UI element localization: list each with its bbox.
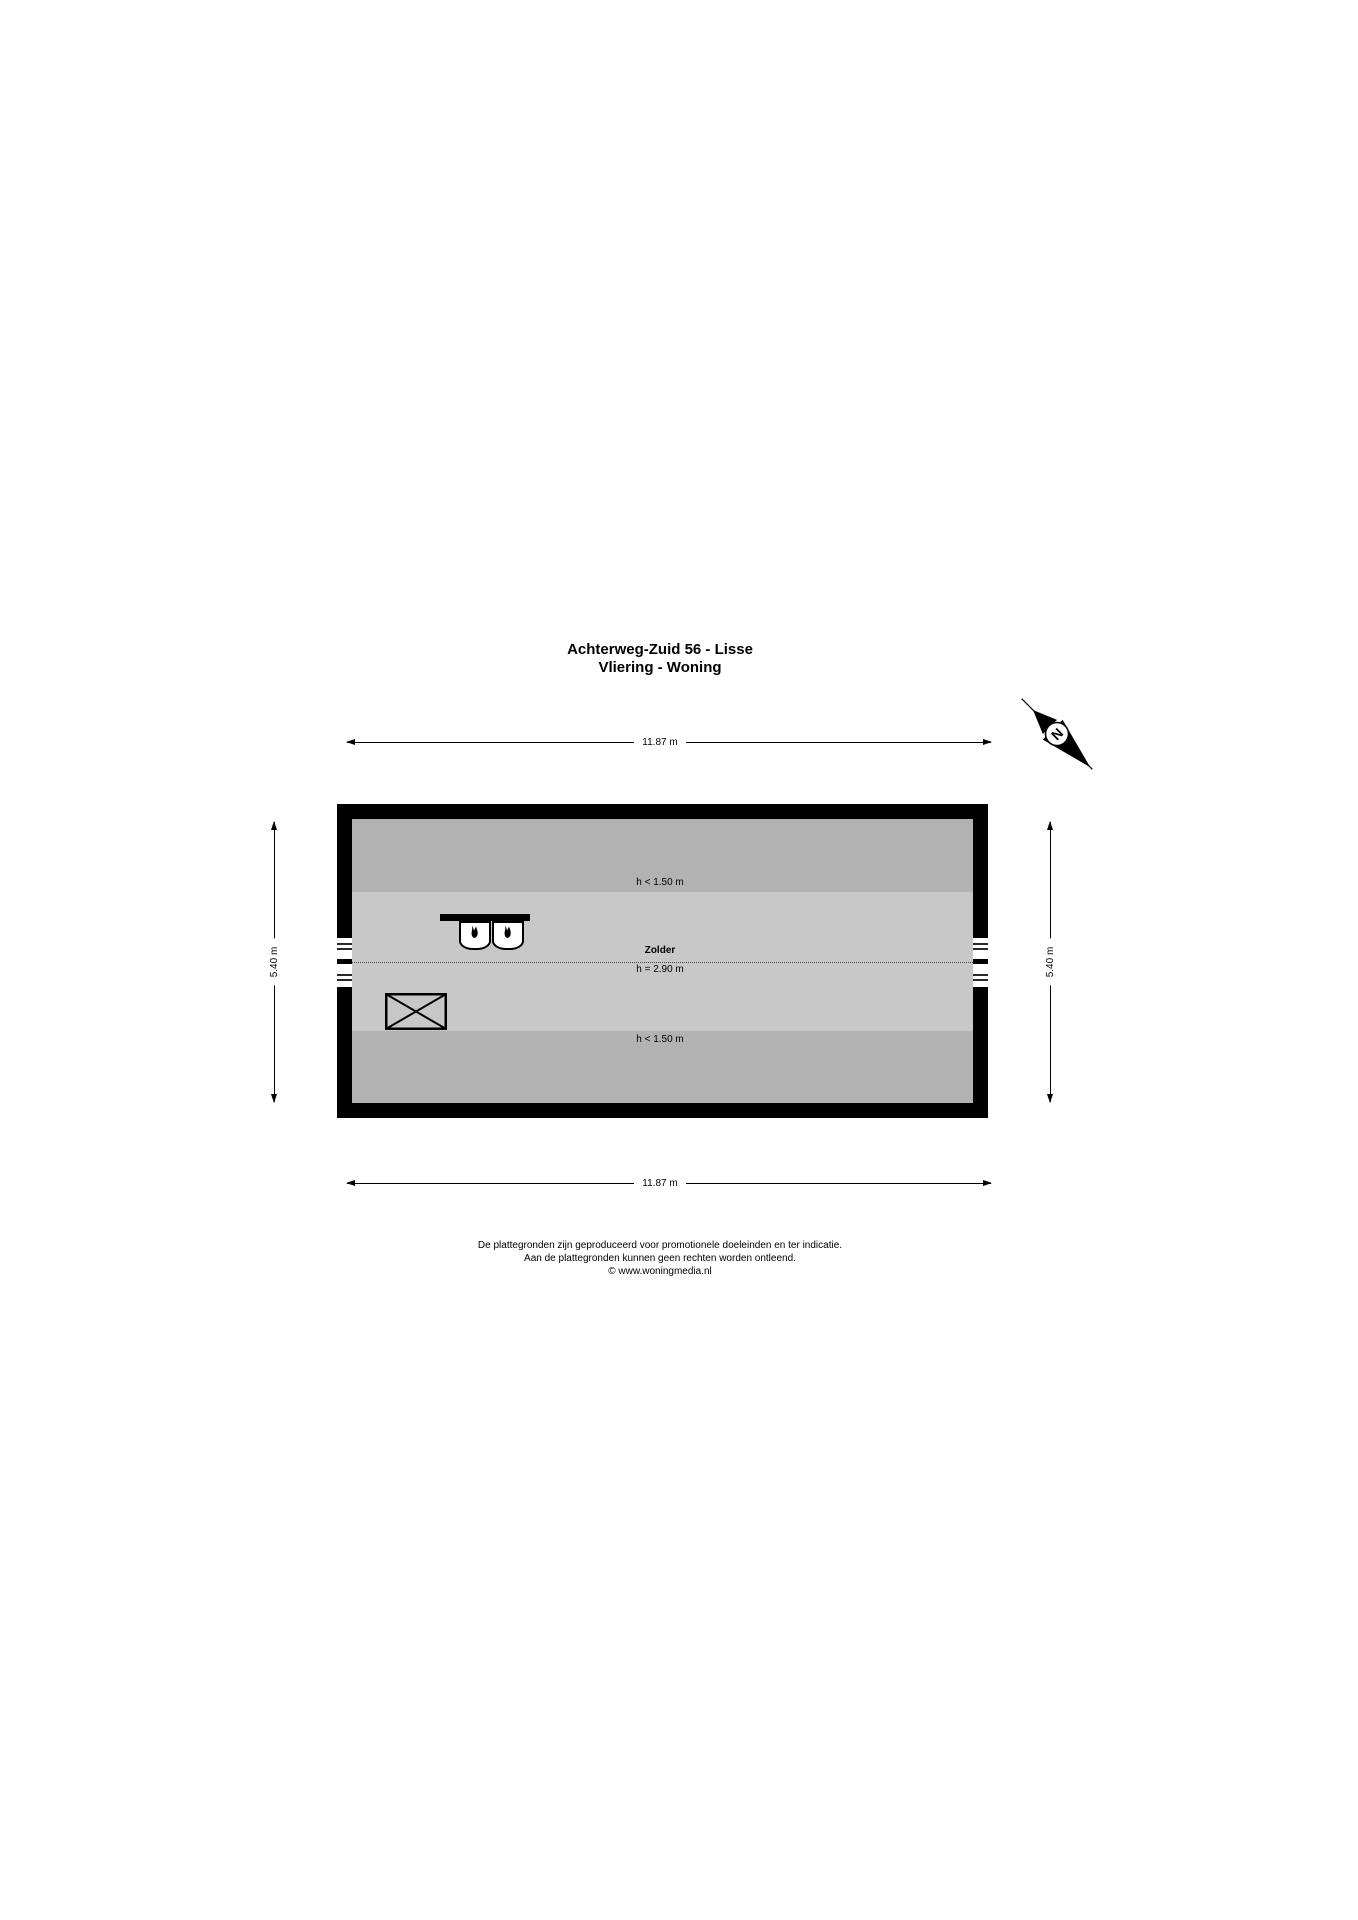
low-headroom-label-top: h < 1.50 m xyxy=(0,877,1320,889)
dimension-label-bottom: 11.87 m xyxy=(0,1178,1320,1190)
floorplan-page: Achterweg-Zuid 56 - Lisse Vliering - Won… xyxy=(0,0,1358,1920)
low-headroom-label-bottom: h < 1.50 m xyxy=(0,1034,1320,1046)
dimension-label-left: 5.40 m xyxy=(269,939,281,986)
dimension-label-right: 5.40 m xyxy=(1045,939,1057,986)
arrow-up-icon xyxy=(1047,821,1053,830)
arrow-down-icon xyxy=(1047,1094,1053,1103)
footer-disclaimer-line2: Aan de plattegronden kunnen geen rechten… xyxy=(0,1253,1320,1265)
footer-copyright: © www.woningmedia.nl xyxy=(0,1266,1320,1278)
room-height-label: h = 2.90 m xyxy=(0,964,1320,976)
flame-icon xyxy=(502,925,514,941)
louvre-line xyxy=(973,979,988,981)
dimension-label-top: 11.87 m xyxy=(0,737,1320,749)
plan-outline xyxy=(337,804,988,1118)
void-opening-box xyxy=(385,993,447,1030)
arrow-down-icon xyxy=(271,1094,277,1103)
footer-disclaimer-line1: De plattegronden zijn geproduceerd voor … xyxy=(0,1240,1320,1252)
flame-icon xyxy=(469,925,481,941)
north-compass-icon: N xyxy=(1007,684,1107,784)
room-name-label: Zolder xyxy=(0,945,1320,957)
louvre-line xyxy=(337,979,352,981)
ridge-dotted-line xyxy=(352,962,973,963)
arrow-up-icon xyxy=(271,821,277,830)
page-title: Achterweg-Zuid 56 - Lisse xyxy=(0,641,1320,659)
plan-interior xyxy=(352,819,973,1103)
page-subtitle: Vliering - Woning xyxy=(0,659,1320,677)
interior-wall-bar xyxy=(440,914,530,921)
